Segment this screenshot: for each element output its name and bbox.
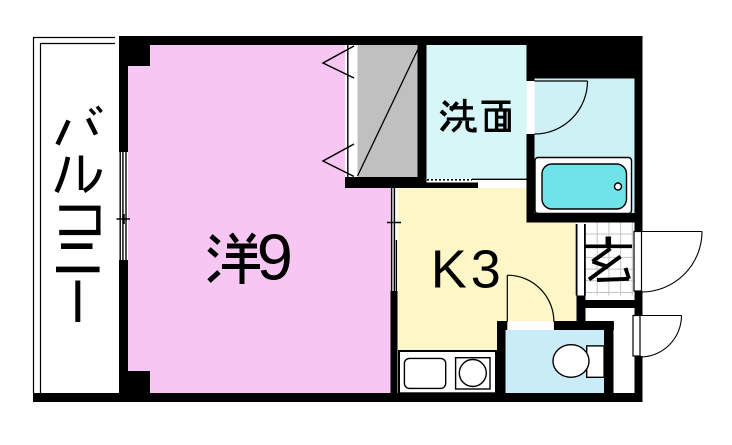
svg-text:9: 9 bbox=[257, 220, 293, 293]
svg-text:3: 3 bbox=[471, 240, 501, 300]
svg-text:K: K bbox=[431, 240, 467, 300]
